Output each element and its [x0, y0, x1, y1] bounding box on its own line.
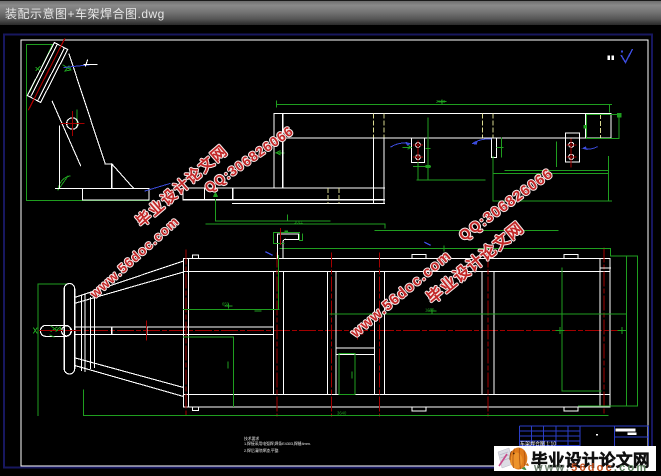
svg-text:1011: 1011 — [294, 220, 304, 225]
svg-text:1.焊接采用电弧焊,焊条E4303,焊缝4mm.: 1.焊接采用电弧焊,焊条E4303,焊缝4mm. — [244, 441, 311, 446]
svg-text:650: 650 — [222, 302, 230, 307]
svg-text:2.焊后清除焊渣,平整.: 2.焊后清除焊渣,平整. — [244, 448, 279, 453]
svg-text:1650: 1650 — [425, 308, 435, 313]
svg-text:2560: 2560 — [436, 99, 446, 104]
svg-text:3640: 3640 — [337, 411, 347, 416]
